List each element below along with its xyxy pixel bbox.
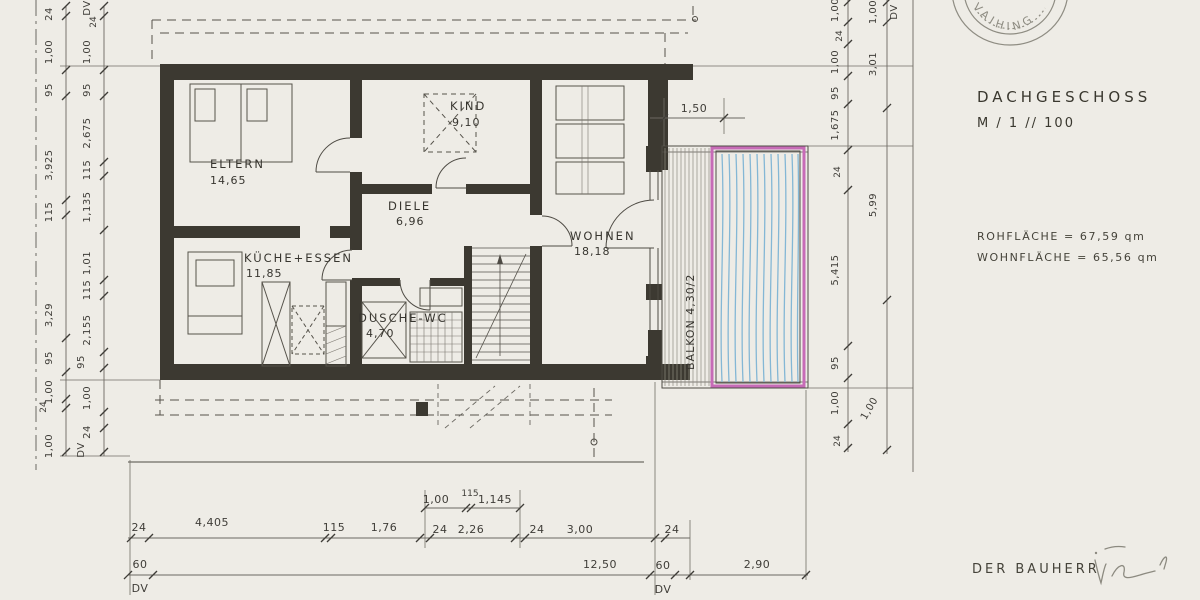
svg-text:1,00: 1,00 <box>44 434 55 458</box>
svg-text:60: 60 <box>656 559 671 572</box>
balcony-window <box>650 170 658 330</box>
svg-text:3,00: 3,00 <box>567 523 594 536</box>
roof-outline-bottom <box>128 380 644 462</box>
room-area-diele: 6,96 <box>396 215 425 228</box>
svg-text:1,145: 1,145 <box>478 493 512 506</box>
svg-text:1,675: 1,675 <box>830 109 841 140</box>
svg-text:115: 115 <box>82 160 93 181</box>
room-area-dusche: 4,70 <box>366 327 395 340</box>
info-panel: DACHGESCHOSS M / 1 // 100 ROHFLÄCHE = 67… <box>972 88 1158 577</box>
svg-text:95: 95 <box>82 83 93 97</box>
svg-text:1,00: 1,00 <box>859 395 881 422</box>
svg-text:2,675: 2,675 <box>82 117 93 148</box>
svg-text:4,405: 4,405 <box>195 516 229 529</box>
scale-label: M / 1 // 100 <box>977 116 1075 131</box>
room-area-kueche: 11,85 <box>246 267 283 280</box>
svg-text:95: 95 <box>44 351 55 365</box>
approval-stamp: VAIHING <box>952 0 1068 45</box>
room-name-kind: KIND <box>450 99 486 113</box>
svg-text:24: 24 <box>39 401 49 413</box>
room-name-balkon: BALKON 4,30/2 <box>684 274 697 370</box>
svg-text:1,00: 1,00 <box>44 380 55 404</box>
room-name-kueche: KÜCHE+ESSEN <box>244 249 353 265</box>
svg-text:115: 115 <box>82 280 93 301</box>
svg-text:3,01: 3,01 <box>868 52 879 76</box>
room-area-kind: 9,10 <box>452 116 481 129</box>
svg-text:1,00: 1,00 <box>830 0 841 22</box>
room-name-dusche: DUSCHE-WC <box>358 311 448 325</box>
svg-text:DV: DV <box>655 583 672 596</box>
svg-text:1,00: 1,00 <box>82 386 93 410</box>
svg-text:1,00: 1,00 <box>44 40 55 64</box>
dimension-labels-right-outer: 1,00 DV 3,01 5,99 1,00 <box>859 0 900 422</box>
dimension-chain-left: 24 1,00 95 3,925 115 3,29 95 1,00 24 1,0… <box>39 0 160 458</box>
svg-text:24: 24 <box>530 523 545 536</box>
svg-text:5,99: 5,99 <box>868 193 879 217</box>
svg-text:DV: DV <box>132 582 149 595</box>
svg-text:1,00: 1,00 <box>82 40 93 64</box>
svg-text:DV: DV <box>889 4 900 19</box>
svg-text:24: 24 <box>833 435 843 447</box>
svg-text:2,155: 2,155 <box>82 314 93 345</box>
svg-text:24: 24 <box>433 523 448 536</box>
svg-text:2,90: 2,90 <box>744 558 771 571</box>
dimension-labels-right-inner: 1,00 24 1,00 95 1,675 24 5,415 95 1,00 2… <box>830 0 845 447</box>
scanned-floorplan-page: 1,50 ELTERN 14,65 KIND 9,10 DIELE 6,96 W… <box>0 0 1200 600</box>
room-name-eltern: ELTERN <box>210 157 265 171</box>
balcony-width-dimension: 1,50 <box>650 98 745 146</box>
svg-text:3,29: 3,29 <box>44 303 55 327</box>
dimension-labels-bottom-row3: DV DV <box>132 582 672 596</box>
svg-text:VAIHING: VAIHING <box>970 1 1037 34</box>
svg-text:3,925: 3,925 <box>44 149 55 180</box>
svg-text:1,00: 1,00 <box>423 493 450 506</box>
svg-text:DV: DV <box>76 442 87 457</box>
room-area-eltern: 14,65 <box>210 174 247 187</box>
svg-text:95: 95 <box>44 83 55 97</box>
room-name-wohnen: WOHNEN <box>570 229 636 243</box>
svg-text:24: 24 <box>44 7 55 21</box>
svg-text:5,415: 5,415 <box>830 254 841 285</box>
svg-text:24: 24 <box>665 523 680 536</box>
dimension-chain-bottom: 1,00 115 1,145 24 4,405 115 1,76 24 2,26… <box>124 382 810 596</box>
balcony: 1,50 <box>650 98 808 388</box>
staircase <box>416 248 530 428</box>
dimension-labels-bottom-row2: 60 12,50 60 2,90 <box>133 558 771 572</box>
svg-text:1,01: 1,01 <box>82 251 93 275</box>
bauherr-signature <box>1095 546 1167 583</box>
svg-text:24: 24 <box>833 166 843 178</box>
dimension-labels-left-outer: 24 1,00 95 3,925 115 3,29 95 1,00 24 1,0… <box>39 7 55 458</box>
svg-text:24: 24 <box>89 16 99 28</box>
svg-text:95: 95 <box>830 356 841 370</box>
wohnflaeche-label: WOHNFLÄCHE = 65,56 qm <box>977 251 1158 264</box>
dimension-labels-left-inner: DV 24 1,00 95 2,675 115 1,135 1,01 115 2… <box>76 0 99 457</box>
svg-text:115: 115 <box>44 202 55 223</box>
svg-text:24: 24 <box>835 30 845 42</box>
svg-text:1,00: 1,00 <box>830 391 841 415</box>
svg-text:1,00: 1,00 <box>868 0 879 24</box>
svg-text:115: 115 <box>323 521 346 534</box>
svg-text:1,135: 1,135 <box>82 191 93 222</box>
svg-text:2,26: 2,26 <box>458 523 485 536</box>
svg-text:115: 115 <box>461 489 478 499</box>
svg-text:95: 95 <box>76 355 87 369</box>
room-area-wohnen: 18,18 <box>574 245 611 258</box>
roof-outline-top <box>152 6 698 64</box>
svg-text:1,76: 1,76 <box>371 521 398 534</box>
dimension-labels-bottom-sub: 1,00 115 1,145 <box>423 489 512 506</box>
dimension-labels-bottom-row1: 24 4,405 115 1,76 24 2,26 24 3,00 24 <box>132 516 680 536</box>
svg-text:95: 95 <box>830 86 841 100</box>
room-name-diele: DIELE <box>388 199 431 213</box>
balcony-blue-hatch <box>721 154 798 382</box>
rohflaeche-label: ROHFLÄCHE = 67,59 qm <box>977 230 1145 243</box>
floorplan-drawing: 1,50 ELTERN 14,65 KIND 9,10 DIELE 6,96 W… <box>0 0 1200 600</box>
bauherr-label: DER BAUHERR <box>972 562 1100 577</box>
floor-title: DACHGESCHOSS <box>977 88 1151 106</box>
svg-text:DV: DV <box>82 0 93 15</box>
stamp-arc-text: VAIHING <box>970 1 1037 34</box>
svg-text:24: 24 <box>82 425 93 439</box>
svg-text:60: 60 <box>133 558 148 571</box>
svg-text:12,50: 12,50 <box>583 558 617 571</box>
dim-label: 1,50 <box>681 102 708 115</box>
svg-text:24: 24 <box>132 521 147 534</box>
svg-text:1,00: 1,00 <box>830 50 841 74</box>
